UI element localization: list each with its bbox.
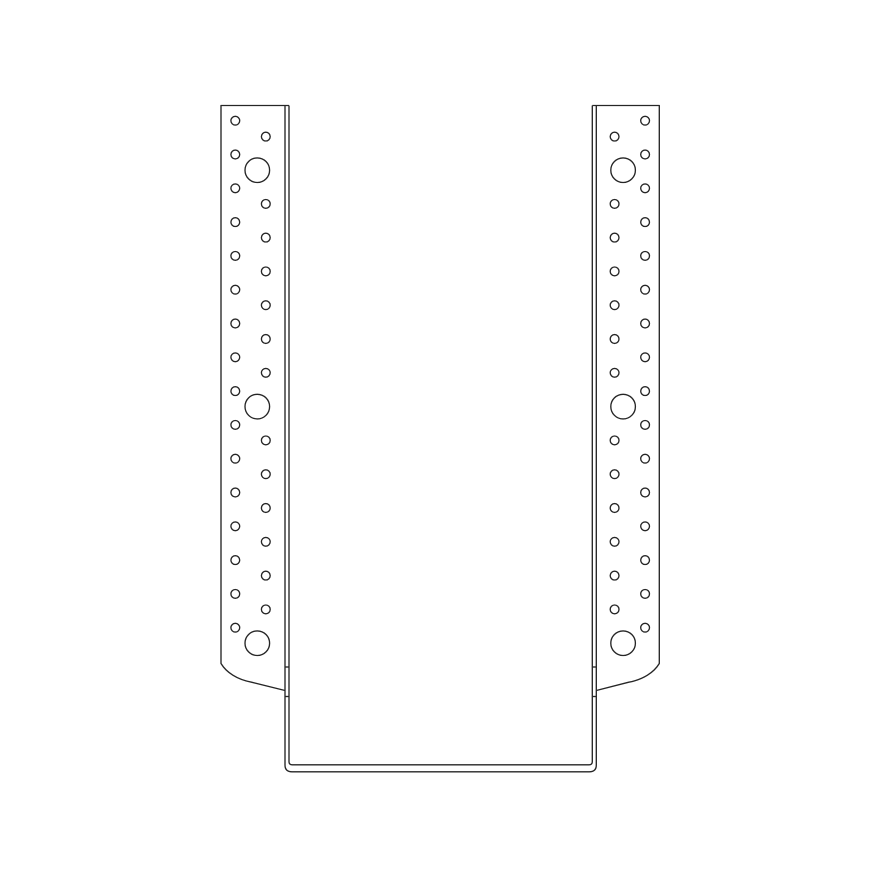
right-flange-bolt-hole [611,394,636,419]
page-canvas [0,0,880,880]
right-flange-inner-nail-hole [610,605,619,614]
left-flange-outer-nail-hole [231,218,240,227]
right-flange-outer-nail-hole [641,522,650,531]
right-flange-inner-nail-hole [610,335,619,344]
left-flange-outer-nail-hole [231,623,240,632]
left-flange-inner-nail-hole [261,200,270,209]
left-flange-outer-nail-hole [231,556,240,565]
left-flange-inner-nail-hole [261,132,270,141]
right-flange-outer-nail-hole [641,353,650,362]
left-flange-bolt-hole [245,631,270,656]
left-flange-bolt-hole [245,158,270,183]
left-flange-outer-nail-hole [231,319,240,328]
right-flange-outer-nail-hole [641,421,650,430]
left-flange-inner-nail-hole [261,335,270,344]
right-flange-bolt-hole [611,631,636,656]
right-flange-inner-nail-hole [610,571,619,580]
left-flange-outer-nail-hole [231,252,240,261]
right-flange-inner-nail-hole [610,233,619,242]
left-flange-outer-nail-hole [231,454,240,463]
right-flange-outer-nail-hole [641,319,650,328]
left-flange-inner-nail-hole [261,267,270,276]
right-flange-inner-nail-hole [610,200,619,209]
right-flange-inner-nail-hole [610,504,619,513]
left-flange-outer-nail-hole [231,150,240,159]
right-flange-outer-nail-hole [641,488,650,497]
left-flange-inner-nail-hole [261,301,270,310]
right-flange-outer-nail-hole [641,252,650,261]
left-flange-outer-nail-hole [231,488,240,497]
left-flange-outer-nail-hole [231,421,240,430]
right-flange-outer-nail-hole [641,116,650,125]
left-flange-outer-nail-hole [231,285,240,294]
hanger-drawing-svg [0,0,880,880]
left-flange-outer-nail-hole [231,522,240,531]
left-flange-inner-nail-hole [261,368,270,377]
right-flange-inner-nail-hole [610,537,619,546]
right-flange-outer-nail-hole [641,387,650,396]
drawing-background [0,0,880,880]
right-flange-inner-nail-hole [610,301,619,310]
left-flange-outer-nail-hole [231,590,240,599]
right-flange-inner-nail-hole [610,132,619,141]
right-flange-outer-nail-hole [641,218,650,227]
left-flange-inner-nail-hole [261,470,270,479]
left-flange-inner-nail-hole [261,233,270,242]
right-flange-outer-nail-hole [641,623,650,632]
left-flange-outer-nail-hole [231,387,240,396]
left-flange-bolt-hole [245,394,270,419]
left-flange-inner-nail-hole [261,605,270,614]
right-flange-outer-nail-hole [641,184,650,193]
left-flange-inner-nail-hole [261,436,270,445]
right-flange-outer-nail-hole [641,556,650,565]
left-flange-inner-nail-hole [261,537,270,546]
left-flange-outer-nail-hole [231,353,240,362]
left-flange-outer-nail-hole [231,184,240,193]
right-flange-outer-nail-hole [641,454,650,463]
right-flange-outer-nail-hole [641,150,650,159]
right-flange-outer-nail-hole [641,590,650,599]
right-flange-inner-nail-hole [610,470,619,479]
right-flange-inner-nail-hole [610,267,619,276]
left-flange-inner-nail-hole [261,504,270,513]
left-flange-outer-nail-hole [231,116,240,125]
right-flange-inner-nail-hole [610,368,619,377]
right-flange-outer-nail-hole [641,285,650,294]
right-flange-inner-nail-hole [610,436,619,445]
right-flange-bolt-hole [611,158,636,183]
left-flange-inner-nail-hole [261,571,270,580]
